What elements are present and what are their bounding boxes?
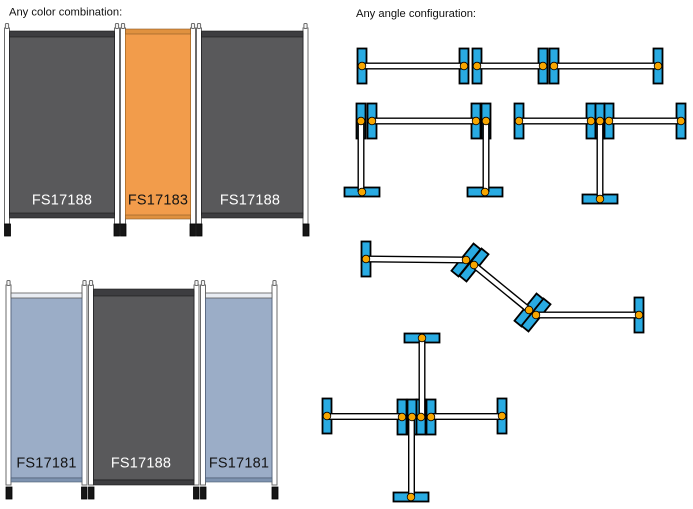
panel-bottom-rail [126,215,191,219]
folding-screen-diagram: Any color combination: Any angle configu… [0,0,693,509]
hinge-dot [408,413,416,421]
base-foot [197,224,203,236]
panel-bottom-rail [206,478,273,482]
screen-bottom: FS17181 FS17188 FS17181 [6,281,278,500]
panel-fabric [10,33,115,215]
hinge-dot [417,413,425,421]
post-cap [89,281,92,286]
hinge-dot [605,117,613,125]
frame-post [5,28,10,224]
hinge-dot [357,117,365,125]
base-foot [303,224,309,236]
post-cap [83,281,86,286]
config-zigzag [362,242,644,333]
base-foot [272,487,278,499]
hinge-dot [398,413,406,421]
base-foot [190,224,196,236]
panel-code-label: FS17181 [16,456,76,472]
hinge-dot [515,117,523,125]
hinge-dot [635,311,643,319]
config-straight-line [358,49,663,84]
hinge-dot [587,117,595,125]
hinge-dot [473,62,481,70]
panel-dark-right [202,31,304,218]
panel-top-rail [94,289,195,296]
base-foot [201,487,207,499]
frame-post [89,285,94,485]
hinge-dot [677,117,685,125]
panel-bottom-rail [94,480,195,485]
panel-bottom-rail [11,478,82,482]
post-cap [115,24,118,29]
panel-top-rail [11,293,82,298]
frame-post [303,28,308,224]
hinge-dot [539,62,547,70]
panel-blue-right [206,293,273,482]
config-u-bridge [345,104,503,197]
hinge-dot [427,413,435,421]
post-cap [191,24,194,29]
panel-fabric [94,291,195,480]
panel-fabric [206,296,273,478]
frame-post [6,285,11,485]
hinge-dot [596,117,604,125]
config-t-shape [515,104,686,204]
panel-top-rail [126,29,191,34]
hinge-dot [596,195,604,203]
panel-blue-left [11,293,82,482]
hinge-dot [498,412,506,420]
post-cap [273,281,276,286]
hinge-dot [470,261,478,269]
panel-fabric [202,33,304,215]
panel-fabric [11,296,82,478]
panel-top-rail [10,31,115,37]
panel-fabric [126,31,191,217]
panel-code-label: FS17181 [209,456,269,472]
hinge-dot [482,117,490,125]
panel-dark-left [10,31,115,218]
hinge-dot [358,62,366,70]
panel-top-view [474,265,529,310]
base-foot [82,487,88,499]
heading-angle-configuration: Any angle configuration: [356,8,476,20]
hinge-dot [407,493,415,501]
post-cap [197,24,200,29]
hinge-dot [532,311,540,319]
panel-bottom-rail [10,213,115,218]
panel-code-label: FS17188 [220,193,280,209]
panel-bottom-rail [202,213,304,218]
hinge-dot [654,62,662,70]
post-cap [201,281,204,286]
panel-top-rail [206,293,273,298]
heading-color-combination: Any color combination: [9,7,122,19]
hinge-dot [472,117,480,125]
post-cap [121,24,124,29]
base-foot [89,487,95,499]
config-cross [323,334,507,502]
hinge-dot [362,255,370,263]
screen-top: FS17188 FS17183 FS17188 [5,24,310,237]
base-foot [121,224,127,236]
panel-code-label: FS17183 [128,193,188,209]
hinge-dot [481,188,489,196]
panel-top-rail [202,31,304,37]
hinge-dot [368,117,376,125]
panel-code-label: FS17188 [111,456,171,472]
frame-post [191,28,196,224]
frame-post [121,28,126,224]
post-cap [7,281,10,286]
panel-code-label: FS17188 [32,193,92,209]
base-feet [5,224,310,236]
frame-post [272,285,277,485]
post-cap [5,24,8,29]
base-feet [6,487,278,499]
panel-orange-middle [126,29,191,219]
frame-post [115,28,120,224]
frame-post [197,28,202,224]
frame-post [201,285,206,485]
base-foot [114,224,120,236]
hinge-dot [460,62,468,70]
hinge-dot [323,412,331,420]
panel-top-view [366,259,466,260]
frame-post [194,285,199,485]
hinge-dot [358,188,366,196]
post-cap [195,281,198,286]
hinge-dot [418,334,426,342]
illustration-canvas: Any color combination: Any angle configu… [0,0,693,509]
base-foot [5,224,11,236]
hinge-dot [462,256,470,264]
post-cap [304,24,307,29]
frame-post [82,285,87,485]
hinge-dot [525,306,533,314]
hinge-dot [550,62,558,70]
base-foot [194,487,200,499]
base-foot [6,487,12,499]
